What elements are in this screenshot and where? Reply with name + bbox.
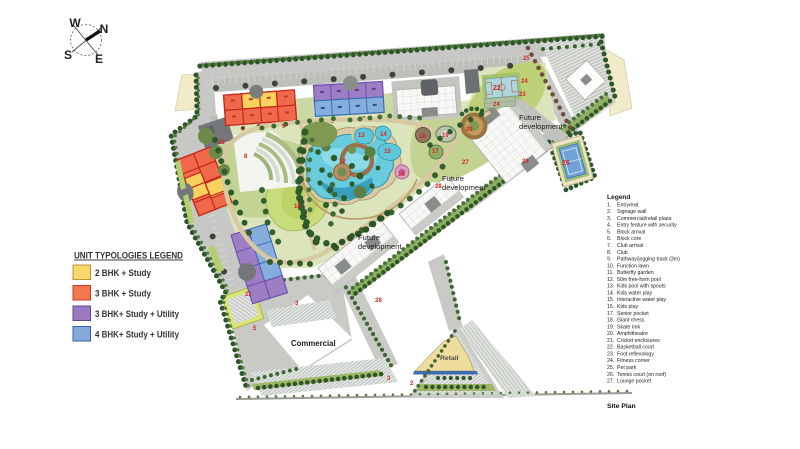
svg-text:13.: 13. (607, 284, 614, 290)
svg-text:development: development (519, 122, 563, 131)
svg-text:development: development (442, 183, 486, 192)
svg-text:development: development (358, 242, 402, 251)
svg-text:4 BHK+ Study + Utility: 4 BHK+ Study + Utility (95, 330, 179, 340)
svg-text:Pet park: Pet park (617, 365, 637, 371)
svg-text:20.: 20. (607, 331, 614, 337)
svg-text:24.: 24. (607, 358, 614, 364)
svg-text:17.: 17. (607, 311, 614, 317)
svg-text:26.: 26. (607, 372, 614, 378)
svg-text:24: 24 (521, 79, 528, 85)
svg-text:Butterfly garden: Butterfly garden (617, 270, 654, 276)
svg-text:28: 28 (522, 159, 529, 165)
svg-text:Entry feature with security: Entry feature with security (617, 223, 677, 229)
svg-text:Kids water play: Kids water play (617, 290, 653, 296)
svg-text:28: 28 (375, 298, 382, 304)
svg-text:5.: 5. (607, 229, 611, 235)
svg-text:2.: 2. (607, 209, 611, 215)
svg-text:19: 19 (442, 133, 449, 139)
svg-text:13: 13 (358, 133, 365, 139)
svg-text:19.: 19. (607, 324, 614, 330)
svg-text:28: 28 (435, 184, 442, 190)
svg-text:18.: 18. (607, 318, 614, 324)
svg-text:23: 23 (519, 92, 526, 98)
svg-text:Senior pocket: Senior pocket (617, 311, 649, 317)
svg-text:6.: 6. (607, 236, 611, 242)
svg-text:15.: 15. (607, 297, 614, 303)
svg-text:22: 22 (493, 85, 501, 92)
svg-text:22.: 22. (607, 345, 614, 351)
svg-text:Cricket enclosures: Cricket enclosures (617, 338, 660, 344)
svg-text:Foot reflexology: Foot reflexology (617, 352, 654, 358)
svg-text:W: W (69, 16, 81, 30)
svg-text:Site Plan: Site Plan (607, 403, 636, 410)
svg-text:23: 23 (218, 140, 225, 146)
svg-text:27: 27 (462, 160, 469, 166)
svg-text:25.: 25. (607, 365, 614, 371)
svg-text:E: E (95, 52, 103, 66)
svg-text:12: 12 (339, 159, 346, 165)
svg-text:Entry/exit: Entry/exit (617, 202, 639, 208)
svg-text:17: 17 (432, 149, 439, 155)
svg-text:Giant chess: Giant chess (617, 318, 645, 324)
svg-text:15: 15 (384, 149, 391, 155)
svg-text:11.: 11. (607, 270, 614, 276)
svg-text:Future: Future (442, 174, 464, 183)
svg-text:Pathway/jogging track (3m): Pathway/jogging track (3m) (617, 257, 680, 263)
svg-text:Skate rink: Skate rink (617, 324, 640, 330)
svg-text:3 BHK + Study: 3 BHK + Study (95, 289, 151, 299)
svg-text:Legend: Legend (607, 194, 630, 201)
svg-text:Club arrival: Club arrival (617, 243, 643, 249)
svg-text:21.: 21. (607, 338, 614, 344)
svg-text:Future: Future (519, 113, 541, 122)
svg-text:Function lawn: Function lawn (617, 263, 649, 269)
svg-text:50m free-form pool: 50m free-form pool (617, 277, 661, 283)
svg-text:7.: 7. (607, 243, 611, 249)
svg-text:25: 25 (523, 56, 530, 62)
svg-text:Amphitheatre: Amphitheatre (617, 331, 648, 337)
svg-text:16.: 16. (607, 304, 614, 310)
svg-text:N: N (100, 22, 109, 36)
svg-text:8.: 8. (607, 250, 611, 256)
svg-text:16: 16 (398, 172, 405, 178)
svg-text:Tennis court (on roof): Tennis court (on roof) (617, 372, 666, 378)
svg-text:26: 26 (562, 160, 570, 167)
svg-text:21: 21 (245, 292, 252, 298)
svg-text:27.: 27. (607, 379, 614, 385)
svg-text:Fitness corner: Fitness corner (617, 358, 650, 364)
svg-text:Commercial: Commercial (291, 339, 336, 348)
svg-text:Signage wall: Signage wall (617, 209, 646, 215)
svg-text:1.: 1. (607, 202, 611, 208)
svg-text:Basketball court: Basketball court (617, 345, 654, 351)
svg-text:4.: 4. (607, 223, 611, 229)
svg-text:9.: 9. (607, 257, 611, 263)
svg-text:Kids play: Kids play (617, 304, 638, 310)
svg-text:Lounge pocket: Lounge pocket (617, 379, 652, 385)
svg-text:Block arrival: Block arrival (617, 229, 645, 235)
svg-text:12.: 12. (607, 277, 614, 283)
svg-text:3 BHK+ Study + Utility: 3 BHK+ Study + Utility (95, 309, 179, 319)
svg-text:20: 20 (466, 127, 473, 133)
svg-text:2 BHK + Study: 2 BHK + Study (95, 268, 151, 278)
svg-text:10.: 10. (607, 263, 614, 269)
svg-text:Retail: Retail (440, 355, 459, 362)
svg-text:14.: 14. (607, 290, 614, 296)
svg-text:24: 24 (493, 102, 500, 108)
svg-text:Kids pool with spouts: Kids pool with spouts (617, 284, 666, 290)
svg-text:18: 18 (419, 134, 426, 140)
svg-text:10: 10 (294, 204, 301, 210)
svg-text:14: 14 (380, 132, 387, 138)
svg-text:UNIT TYPOLOGIES LEGEND: UNIT TYPOLOGIES LEGEND (74, 251, 183, 262)
svg-text:3.: 3. (607, 216, 611, 222)
svg-text:Interactive water play: Interactive water play (617, 297, 666, 303)
svg-text:23.: 23. (607, 352, 614, 358)
svg-text:S: S (64, 48, 72, 62)
svg-text:Commercial/retail plaza: Commercial/retail plaza (617, 216, 671, 222)
svg-text:Future: Future (358, 233, 380, 242)
svg-text:Block core: Block core (617, 236, 641, 242)
svg-text:Club: Club (617, 250, 628, 256)
